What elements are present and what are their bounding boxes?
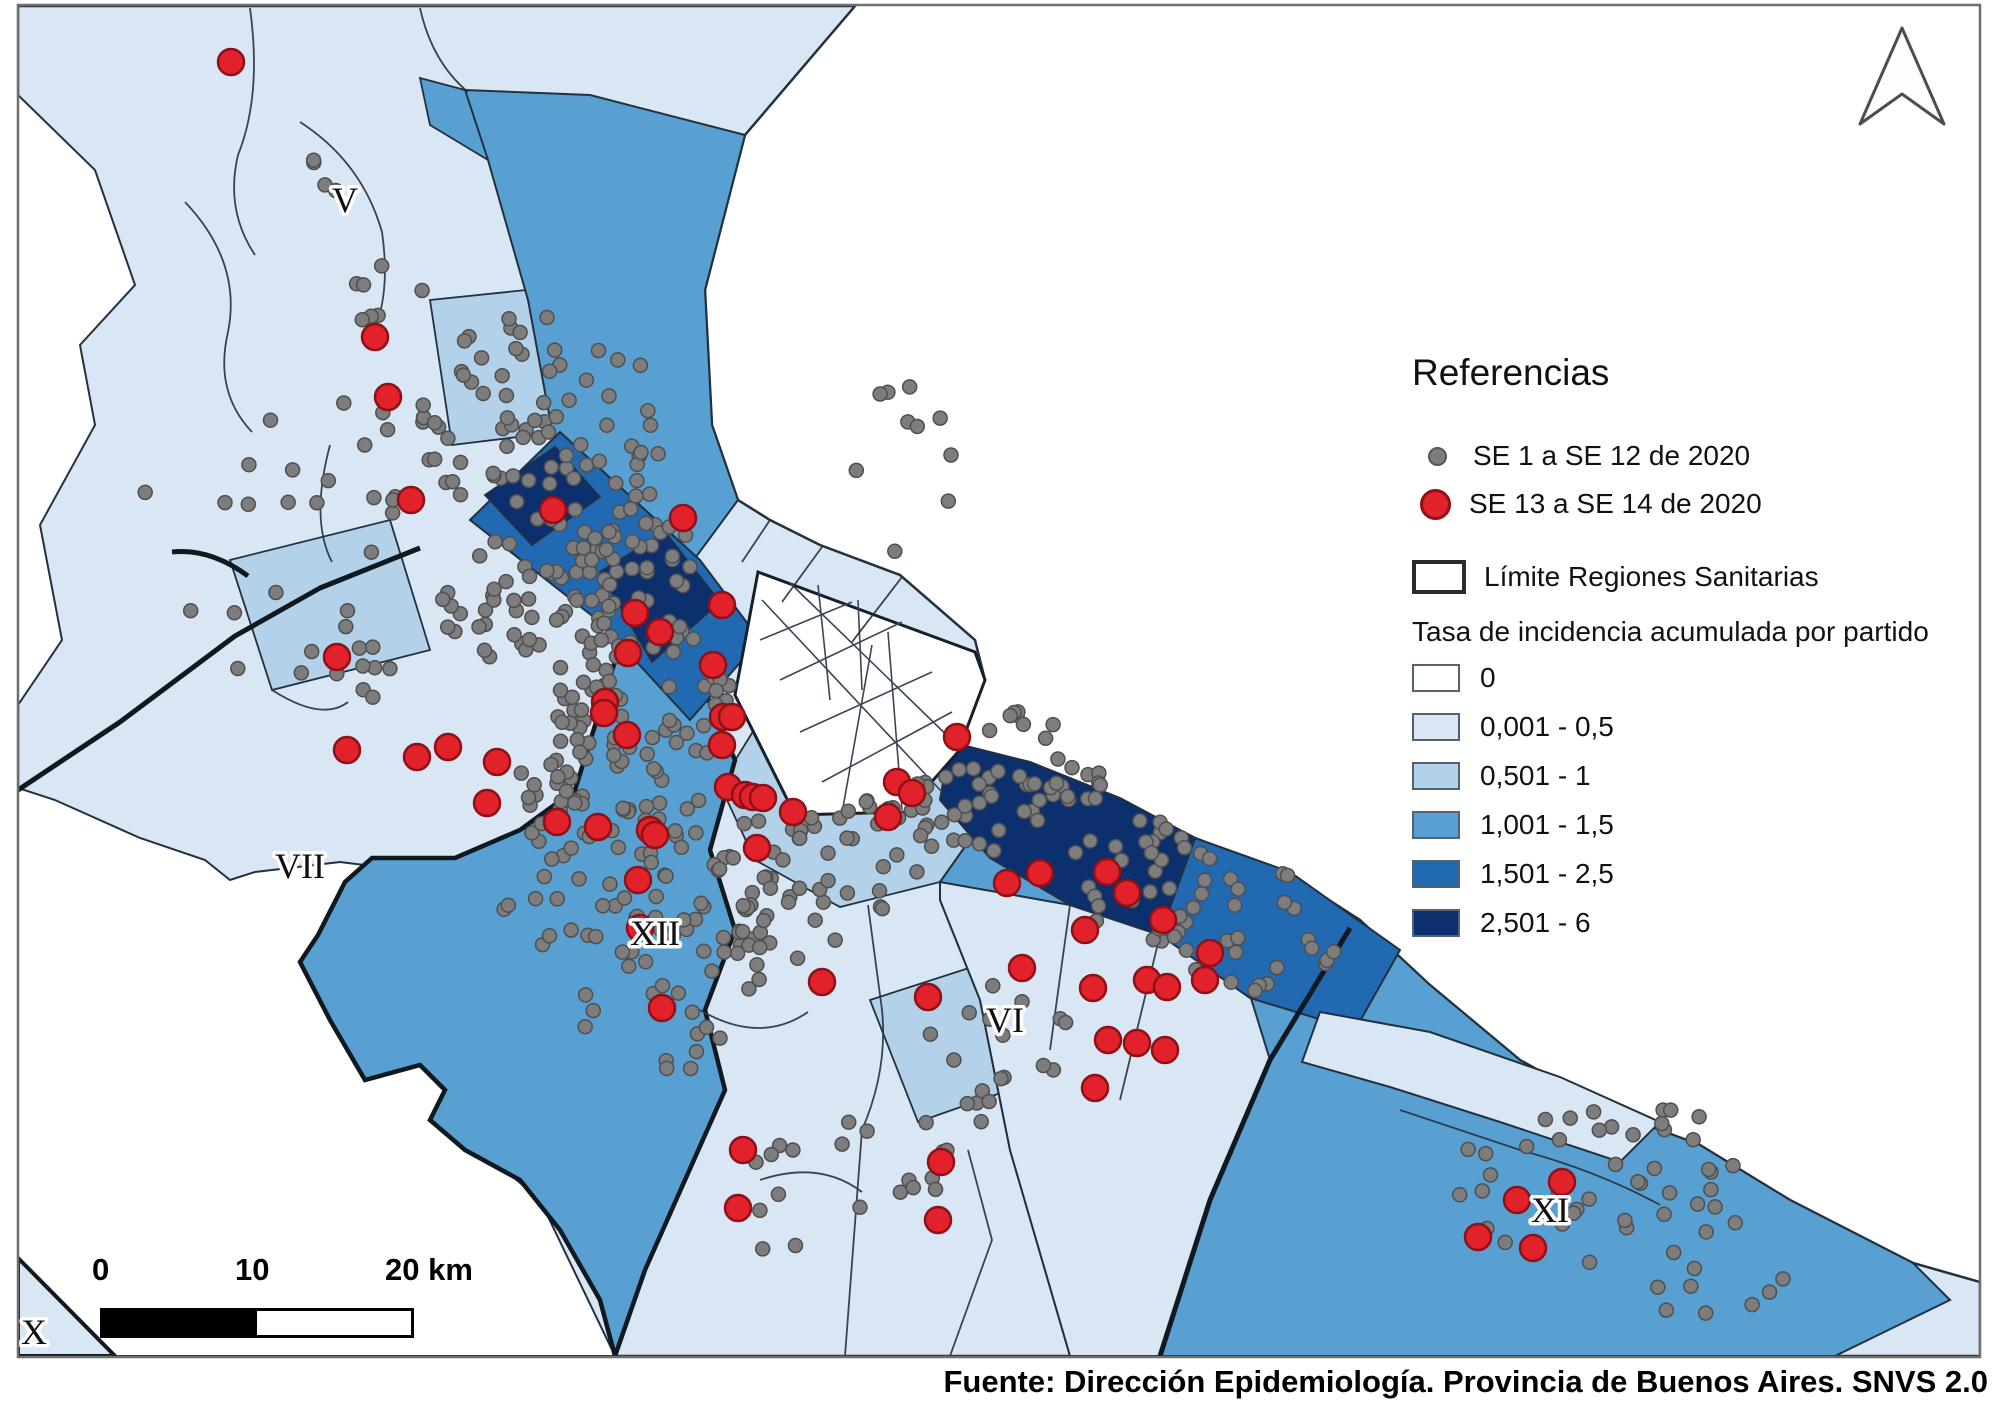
case-dot-gray	[478, 643, 492, 657]
case-dot-gray	[575, 703, 589, 717]
legend-class-row: 0,501 - 1	[1412, 760, 1997, 792]
case-dot-gray	[516, 430, 530, 444]
case-dot-gray	[441, 431, 455, 445]
source-attribution: Fuente: Dirección Epidemiología. Provinc…	[943, 1364, 1988, 1400]
case-dot-red	[615, 640, 641, 666]
region-label-vii: VII	[275, 846, 325, 886]
case-dot-gray	[1032, 793, 1046, 807]
case-dot-gray	[559, 449, 573, 463]
case-dot-gray	[577, 541, 591, 555]
case-dot-gray	[610, 565, 624, 579]
case-dot-gray	[933, 411, 947, 425]
case-dot-gray	[542, 425, 556, 439]
case-dot-gray	[705, 964, 719, 978]
case-dot-gray	[639, 955, 653, 969]
case-dot-gray	[808, 913, 822, 927]
scale-tick: 0	[92, 1252, 109, 1288]
legend-class-row: 0	[1412, 662, 1997, 694]
class-swatch-icon	[1412, 664, 1460, 692]
region-label-x: X	[21, 1312, 47, 1352]
case-dot-gray	[645, 731, 659, 745]
case-dot-gray	[242, 458, 256, 472]
class-label: 0,501 - 1	[1480, 760, 1591, 792]
legend: Referencias SE 1 a SE 12 de 2020 SE 13 a…	[1412, 352, 1997, 956]
case-dot-gray	[666, 645, 680, 659]
class-label: 1,001 - 1,5	[1480, 809, 1614, 841]
case-dot-gray	[717, 931, 731, 945]
case-dot-gray	[1083, 834, 1097, 848]
case-dot-gray	[1162, 881, 1176, 895]
case-dot-gray	[1583, 1255, 1597, 1269]
case-dot-gray	[1692, 1110, 1706, 1124]
case-dot-red	[647, 619, 673, 645]
case-dot-red	[435, 734, 461, 760]
case-dot-gray	[849, 463, 863, 477]
case-dot-gray	[737, 817, 751, 831]
case-dot-gray	[821, 874, 835, 888]
case-dot-gray	[522, 791, 536, 805]
case-dot-gray	[742, 982, 756, 996]
case-dot-gray	[184, 604, 198, 618]
case-dot-red	[1124, 1030, 1150, 1056]
case-dot-gray	[757, 914, 771, 928]
case-dot-red	[915, 984, 941, 1010]
case-dot-gray	[1177, 841, 1191, 855]
case-dot-gray	[602, 599, 616, 613]
class-label: 1,501 - 2,5	[1480, 858, 1614, 890]
case-dot-red	[540, 497, 566, 523]
case-dot-gray	[550, 613, 564, 627]
case-dot-gray	[982, 1095, 996, 1109]
case-dot-gray	[697, 944, 711, 958]
case-dot-gray	[651, 447, 665, 461]
scale-tick: 10	[235, 1252, 269, 1288]
case-dot-red	[994, 870, 1020, 896]
case-dot-gray	[564, 923, 578, 937]
case-dot-gray	[339, 620, 353, 634]
case-dot-red	[375, 384, 401, 410]
case-dot-gray	[935, 815, 949, 829]
case-dot-gray	[1036, 1059, 1050, 1073]
case-dot-gray	[1647, 1161, 1661, 1175]
case-dot-gray	[888, 544, 902, 558]
case-dot-red	[780, 799, 806, 825]
case-dot-gray	[859, 795, 873, 809]
case-dot-gray	[495, 369, 509, 383]
case-dot-gray	[545, 852, 559, 866]
case-dot-gray	[502, 312, 516, 326]
case-dot-gray	[602, 389, 616, 403]
case-dot-gray	[750, 958, 764, 972]
case-dot-gray	[644, 855, 658, 869]
case-dot-gray	[985, 789, 999, 803]
case-dot-red	[544, 809, 570, 835]
case-dot-red	[1080, 975, 1106, 1001]
case-dot-gray	[446, 475, 460, 489]
case-dot-gray	[947, 1053, 961, 1067]
legend-class-row: 1,501 - 2,5	[1412, 858, 1997, 890]
case-dot-gray	[307, 153, 321, 167]
case-dot-gray	[603, 578, 617, 592]
case-dot-gray	[983, 724, 997, 738]
legend-item-label: SE 1 a SE 12 de 2020	[1473, 440, 1750, 472]
case-dot-gray	[653, 796, 667, 810]
case-dot-gray	[972, 777, 986, 791]
case-dot-gray	[771, 1187, 785, 1201]
case-dot-gray	[599, 543, 613, 557]
case-dot-gray	[218, 496, 232, 510]
case-dot-gray	[1051, 752, 1065, 766]
case-dot-gray	[458, 334, 472, 348]
case-dot-gray	[383, 662, 397, 676]
case-dot-red	[1114, 880, 1140, 906]
case-dot-gray	[647, 762, 661, 776]
case-dot-red	[649, 995, 675, 1021]
case-dot-gray	[475, 351, 489, 365]
case-dot-gray	[622, 959, 636, 973]
case-dot-gray	[1708, 1200, 1722, 1214]
case-dot-gray	[821, 846, 835, 860]
legend-item-label: Límite Regiones Sanitarias	[1484, 561, 1819, 593]
case-dot-gray	[1655, 1117, 1669, 1131]
case-dot-red	[875, 804, 901, 830]
case-dot-gray	[941, 494, 955, 508]
case-dot-gray	[554, 661, 568, 675]
legend-class-row: 0,001 - 0,5	[1412, 711, 1997, 743]
case-dot-gray	[1699, 1225, 1713, 1239]
case-dot-gray	[731, 946, 745, 960]
case-dot-gray	[752, 814, 766, 828]
case-dot-red	[218, 49, 244, 75]
case-dot-gray	[1704, 1183, 1718, 1197]
case-dot-gray	[1664, 1103, 1678, 1117]
case-dot-red	[1082, 1075, 1108, 1101]
case-dot-gray	[1195, 887, 1209, 901]
case-dot-gray	[1059, 1016, 1073, 1030]
case-dot-gray	[506, 469, 520, 483]
case-dot-gray	[876, 860, 890, 874]
class-label: 0,001 - 0,5	[1480, 711, 1614, 743]
case-dot-gray	[840, 886, 854, 900]
case-dot-red	[474, 790, 500, 816]
case-dot-gray	[925, 839, 939, 853]
case-dot-red	[622, 600, 648, 626]
case-dot-gray	[776, 853, 790, 867]
case-dot-gray	[580, 458, 594, 472]
case-dot-gray	[549, 410, 563, 424]
case-dot-gray	[1618, 1214, 1632, 1228]
case-dot-gray	[640, 747, 654, 761]
case-dot-gray	[367, 491, 381, 505]
case-dot-gray	[1659, 1303, 1673, 1317]
case-dot-gray	[1763, 1285, 1777, 1299]
case-dot-gray	[673, 620, 687, 634]
case-dot-gray	[415, 284, 429, 298]
class-label: 2,501 - 6	[1480, 907, 1591, 939]
case-dot-gray	[1684, 1279, 1698, 1293]
case-dot-gray	[543, 477, 557, 491]
case-dot-gray	[501, 898, 515, 912]
case-dot-red	[398, 487, 424, 513]
case-dot-gray	[903, 380, 917, 394]
case-dot-gray	[717, 945, 731, 959]
case-dot-red	[925, 1207, 951, 1233]
case-dot-gray	[753, 941, 767, 955]
scale-bar-filled-half	[103, 1311, 257, 1335]
case-dot-gray	[318, 178, 332, 192]
case-dot-gray	[528, 413, 542, 427]
case-dot-gray	[709, 684, 723, 698]
case-dot-gray	[986, 979, 1000, 993]
case-dot-gray	[665, 549, 679, 563]
class-swatch-icon	[1412, 762, 1460, 790]
case-dot-gray	[507, 593, 521, 607]
case-dot-gray	[906, 1181, 920, 1195]
case-dot-gray	[1069, 846, 1083, 860]
region-label-vi: VI	[986, 1000, 1024, 1040]
case-dot-gray	[994, 1072, 1008, 1086]
case-dot-gray	[1109, 840, 1123, 854]
case-dot-gray	[944, 448, 958, 462]
case-dot-gray	[736, 899, 750, 913]
legend-item-label: SE 13 a SE 14 de 2020	[1469, 488, 1762, 520]
case-dot-red	[484, 749, 510, 775]
case-dot-gray	[1061, 790, 1075, 804]
case-dot-red	[642, 822, 668, 848]
case-dot-gray	[503, 537, 517, 551]
case-dot-gray	[1520, 1140, 1534, 1154]
case-dot-gray	[684, 1062, 698, 1076]
case-dot-gray	[456, 368, 470, 382]
case-dot-gray	[568, 796, 582, 810]
case-dot-gray	[764, 1148, 778, 1162]
case-dot-gray	[793, 831, 807, 845]
case-dot-gray	[835, 1137, 849, 1151]
case-dot-gray	[386, 506, 400, 520]
case-dot-gray	[1093, 778, 1107, 792]
case-dot-gray	[416, 398, 430, 412]
case-dot-gray	[537, 396, 551, 410]
case-dot-gray	[1663, 1186, 1677, 1200]
case-dot-gray	[670, 574, 684, 588]
case-dot-gray	[689, 1045, 703, 1059]
case-dot-gray	[624, 502, 638, 516]
case-dot-red	[1192, 967, 1218, 993]
case-dot-gray	[1552, 1133, 1566, 1147]
case-dot-gray	[1626, 1128, 1640, 1142]
case-dot-gray	[697, 719, 711, 733]
case-dot-gray	[1592, 1123, 1606, 1137]
case-dot-gray	[992, 823, 1006, 837]
case-dot-gray	[671, 986, 685, 1000]
region-label-v: V	[332, 180, 358, 220]
case-dot-gray	[786, 1143, 800, 1157]
case-dot-red	[591, 700, 617, 726]
case-dot-gray	[1479, 1147, 1493, 1161]
case-dot-red	[709, 592, 735, 618]
case-dot-gray	[543, 364, 557, 378]
class-swatch-icon	[1412, 909, 1460, 937]
case-dot-red	[944, 724, 970, 750]
case-dot-gray	[685, 1005, 699, 1019]
case-dot-gray	[522, 592, 536, 606]
case-dot-gray	[713, 862, 727, 876]
case-dot-gray	[659, 869, 673, 883]
case-dot-gray	[890, 848, 904, 862]
case-dot-gray	[625, 535, 639, 549]
case-dot-gray	[923, 1027, 937, 1041]
case-dot-gray	[919, 1116, 933, 1130]
case-dot-gray	[1017, 805, 1031, 819]
case-dot-gray	[1031, 814, 1045, 828]
case-dot-red	[725, 1195, 751, 1221]
case-dot-gray	[568, 503, 582, 517]
case-dot-red	[670, 505, 696, 531]
case-dot-gray	[910, 419, 924, 433]
case-dot-gray	[1231, 931, 1245, 945]
case-dot-gray	[366, 640, 380, 654]
gray-dot-icon	[1428, 447, 1447, 466]
case-dot-gray	[616, 801, 630, 815]
case-dot-gray	[853, 1200, 867, 1214]
boundary-swatch-icon	[1412, 560, 1466, 594]
case-dot-gray	[1186, 901, 1200, 915]
case-dot-gray	[1453, 1188, 1467, 1202]
case-dot-gray	[596, 899, 610, 913]
case-dot-red	[700, 652, 726, 678]
case-dot-gray	[1013, 769, 1027, 783]
case-dot-gray	[1745, 1298, 1759, 1312]
case-dot-gray	[668, 824, 682, 838]
case-dot-red	[750, 785, 776, 811]
case-dot-gray	[1305, 941, 1319, 955]
case-dot-gray	[1231, 882, 1245, 896]
case-dot-gray	[341, 604, 355, 618]
case-dot-gray	[499, 389, 513, 403]
case-dot-gray	[573, 745, 587, 759]
case-dot-gray	[589, 930, 603, 944]
legend-item-recent-cases: SE 13 a SE 14 de 2020	[1412, 488, 1997, 520]
case-dot-gray	[782, 895, 796, 909]
case-dot-red	[1009, 955, 1035, 981]
case-dot-gray	[1270, 961, 1284, 975]
case-dot-gray	[962, 1006, 976, 1020]
case-dot-gray	[960, 1097, 974, 1111]
scale-bar-rule	[100, 1308, 414, 1338]
case-dot-gray	[472, 620, 486, 634]
case-dot-gray	[597, 616, 611, 630]
case-dot-gray	[1651, 1280, 1665, 1294]
case-dot-gray	[522, 633, 536, 647]
case-dot-gray	[572, 872, 586, 886]
choropleth-title: Tasa de incidencia acumulada por partido	[1412, 616, 1997, 648]
case-dot-gray	[594, 633, 608, 647]
case-dot-gray	[726, 851, 740, 865]
case-dot-red	[1197, 940, 1223, 966]
case-dot-gray	[873, 884, 887, 898]
case-dot-gray	[356, 659, 370, 673]
case-dot-gray	[929, 1182, 943, 1196]
case-dot-gray	[1687, 1262, 1701, 1276]
case-dot-gray	[364, 545, 378, 559]
case-dot-red	[1072, 917, 1098, 943]
case-dot-gray	[694, 896, 708, 910]
case-dot-gray	[592, 454, 606, 468]
case-dot-gray	[513, 325, 527, 339]
class-label: 0	[1480, 662, 1496, 694]
case-dot-gray	[543, 929, 557, 943]
case-dot-gray	[644, 418, 658, 432]
case-dot-gray	[649, 890, 663, 904]
case-dot-gray	[618, 891, 632, 905]
case-dot-gray	[476, 387, 490, 401]
case-dot-gray	[487, 582, 501, 596]
case-dot-gray	[355, 313, 369, 327]
case-dot-red	[1520, 1235, 1546, 1261]
case-dot-gray	[579, 988, 593, 1002]
map-page: VVIIXIIVIXIX Referencias SE 1 a SE 12 de…	[0, 0, 2000, 1412]
case-dot-red	[362, 324, 388, 350]
case-dot-gray	[1498, 1235, 1512, 1249]
case-dot-gray	[570, 733, 584, 747]
case-dot-gray	[641, 404, 655, 418]
case-dot-gray	[914, 829, 928, 843]
case-dot-gray	[436, 592, 450, 606]
case-dot-gray	[1484, 1168, 1498, 1182]
case-dot-red	[625, 867, 651, 893]
case-dot-gray	[138, 485, 152, 499]
case-dot-gray	[615, 945, 629, 959]
case-dot-gray	[974, 1115, 988, 1129]
legend-item-boundary: Límite Regiones Sanitarias	[1412, 560, 1997, 594]
case-dot-red	[730, 1137, 756, 1163]
case-dot-red	[404, 744, 430, 770]
case-dot-gray	[507, 628, 521, 642]
case-dot-red	[809, 969, 835, 995]
case-dot-gray	[381, 423, 395, 437]
case-dot-gray	[286, 463, 300, 477]
case-dot-gray	[1657, 1207, 1671, 1221]
case-dot-gray	[1092, 899, 1106, 913]
case-dot-gray	[1667, 1246, 1681, 1260]
case-dot-gray	[588, 531, 602, 545]
case-dot-gray	[828, 933, 842, 947]
case-dot-gray	[510, 495, 524, 509]
case-dot-gray	[662, 680, 676, 694]
case-dot-gray	[500, 439, 514, 453]
scale-tick: 20 km	[385, 1252, 473, 1288]
case-dot-gray	[540, 564, 554, 578]
case-dot-gray	[611, 353, 625, 367]
case-dot-gray	[1016, 717, 1030, 731]
case-dot-gray	[428, 452, 442, 466]
case-dot-gray	[634, 446, 648, 460]
case-dot-red	[744, 835, 770, 861]
case-dot-gray	[1538, 1113, 1552, 1127]
case-dot-gray	[586, 1004, 600, 1018]
case-dot-gray	[609, 476, 623, 490]
case-dot-gray	[514, 766, 528, 780]
case-dot-gray	[227, 606, 241, 620]
case-dot-gray	[1248, 984, 1262, 998]
case-dot-gray	[756, 1242, 770, 1256]
case-dot-gray	[241, 497, 255, 511]
case-dot-gray	[603, 877, 617, 891]
case-dot-red	[334, 737, 360, 763]
case-dot-gray	[840, 831, 854, 845]
north-arrow-icon	[1860, 28, 1944, 124]
case-dot-gray	[607, 748, 621, 762]
